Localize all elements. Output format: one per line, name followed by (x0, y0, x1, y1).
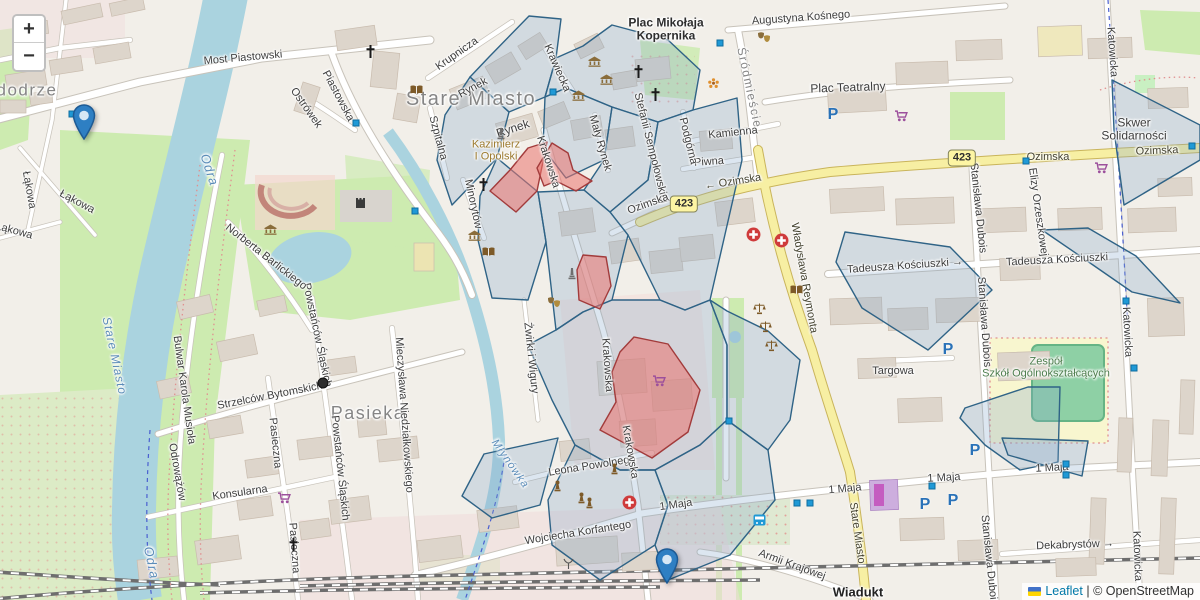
zoom-out-button[interactable]: − (14, 43, 44, 70)
zoom-control: + − (12, 14, 46, 72)
zoom-in-button[interactable]: + (14, 16, 44, 43)
openstreetmap-link[interactable]: © OpenStreetMap (1093, 584, 1194, 598)
attribution-bar: Leaflet | © OpenStreetMap (1022, 583, 1200, 600)
ukraine-flag-icon (1028, 587, 1041, 596)
attribution-separator: | (1083, 584, 1093, 598)
leaflet-link[interactable]: Leaflet (1045, 584, 1083, 598)
leaflet-map[interactable]: dodrzeMost PiastowskiPiastowskaOstrówekO… (0, 0, 1200, 600)
